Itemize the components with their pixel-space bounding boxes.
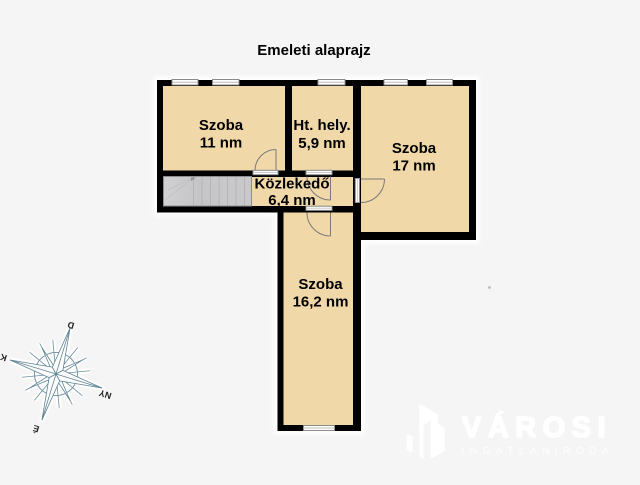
svg-text:11 nm: 11 nm	[200, 135, 243, 152]
svg-text:Szoba: Szoba	[199, 117, 244, 134]
svg-text:VÁROSI: VÁROSI	[462, 410, 612, 444]
svg-text:17 nm: 17 nm	[392, 158, 435, 175]
svg-text:Emeleti alaprajz: Emeleti alaprajz	[257, 42, 370, 59]
svg-text:D: D	[66, 319, 76, 331]
svg-text:Szoba: Szoba	[298, 276, 343, 293]
svg-text:Ht. hely.: Ht. hely.	[293, 117, 350, 134]
svg-text:6,4 nm: 6,4 nm	[268, 192, 316, 209]
svg-text:16,2 nm: 16,2 nm	[293, 294, 349, 311]
svg-text:Közlekedő: Közlekedő	[254, 176, 329, 193]
svg-text:Szoba: Szoba	[392, 140, 437, 157]
svg-text:K: K	[0, 352, 8, 364]
svg-text:INGATLANIRODA: INGATLANIRODA	[462, 445, 615, 457]
svg-text:É: É	[32, 423, 41, 434]
svg-text:5,9 nm: 5,9 nm	[298, 135, 346, 152]
